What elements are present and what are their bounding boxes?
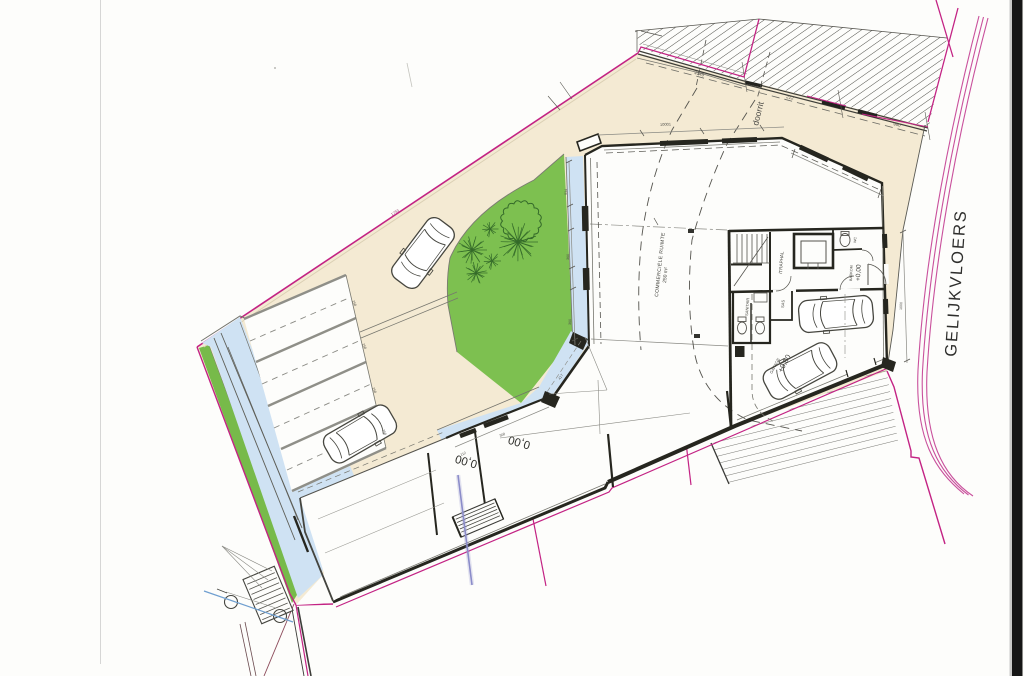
svg-text:+0,00: +0,00: [855, 264, 863, 281]
svg-text:10001: 10001: [660, 121, 672, 127]
svg-text:934: 934: [564, 189, 568, 195]
svg-text:SAS: SAS: [780, 299, 786, 308]
svg-text:BADKOM: BADKOM: [849, 265, 854, 281]
svg-text:360: 360: [566, 254, 570, 260]
svg-text:360: 360: [568, 319, 572, 325]
svg-text:WC: WC: [853, 236, 857, 243]
svg-text:1000: 1000: [899, 302, 903, 310]
